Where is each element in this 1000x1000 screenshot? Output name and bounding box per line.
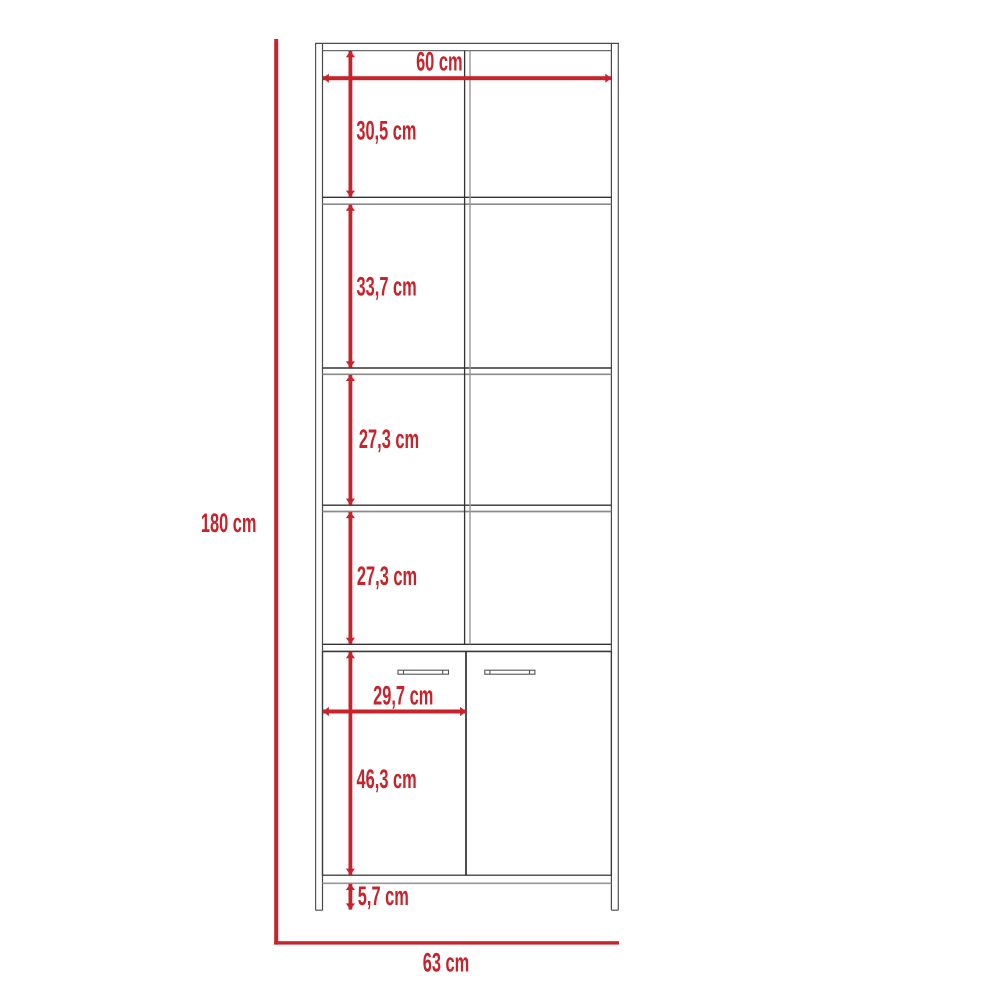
svg-text:29,7 cm: 29,7 cm xyxy=(373,681,433,711)
svg-text:30,5 cm: 30,5 cm xyxy=(356,115,416,145)
svg-text:60 cm: 60 cm xyxy=(416,46,462,76)
svg-text:46,3 cm: 46,3 cm xyxy=(357,764,417,794)
svg-text:33,7 cm: 33,7 cm xyxy=(357,271,417,301)
svg-text:27,3 cm: 27,3 cm xyxy=(357,561,417,591)
svg-text:27,3 cm: 27,3 cm xyxy=(359,424,419,454)
svg-text:180 cm: 180 cm xyxy=(201,508,257,538)
svg-text:5,7 cm: 5,7 cm xyxy=(358,881,409,911)
svg-text:63 cm: 63 cm xyxy=(423,947,469,977)
